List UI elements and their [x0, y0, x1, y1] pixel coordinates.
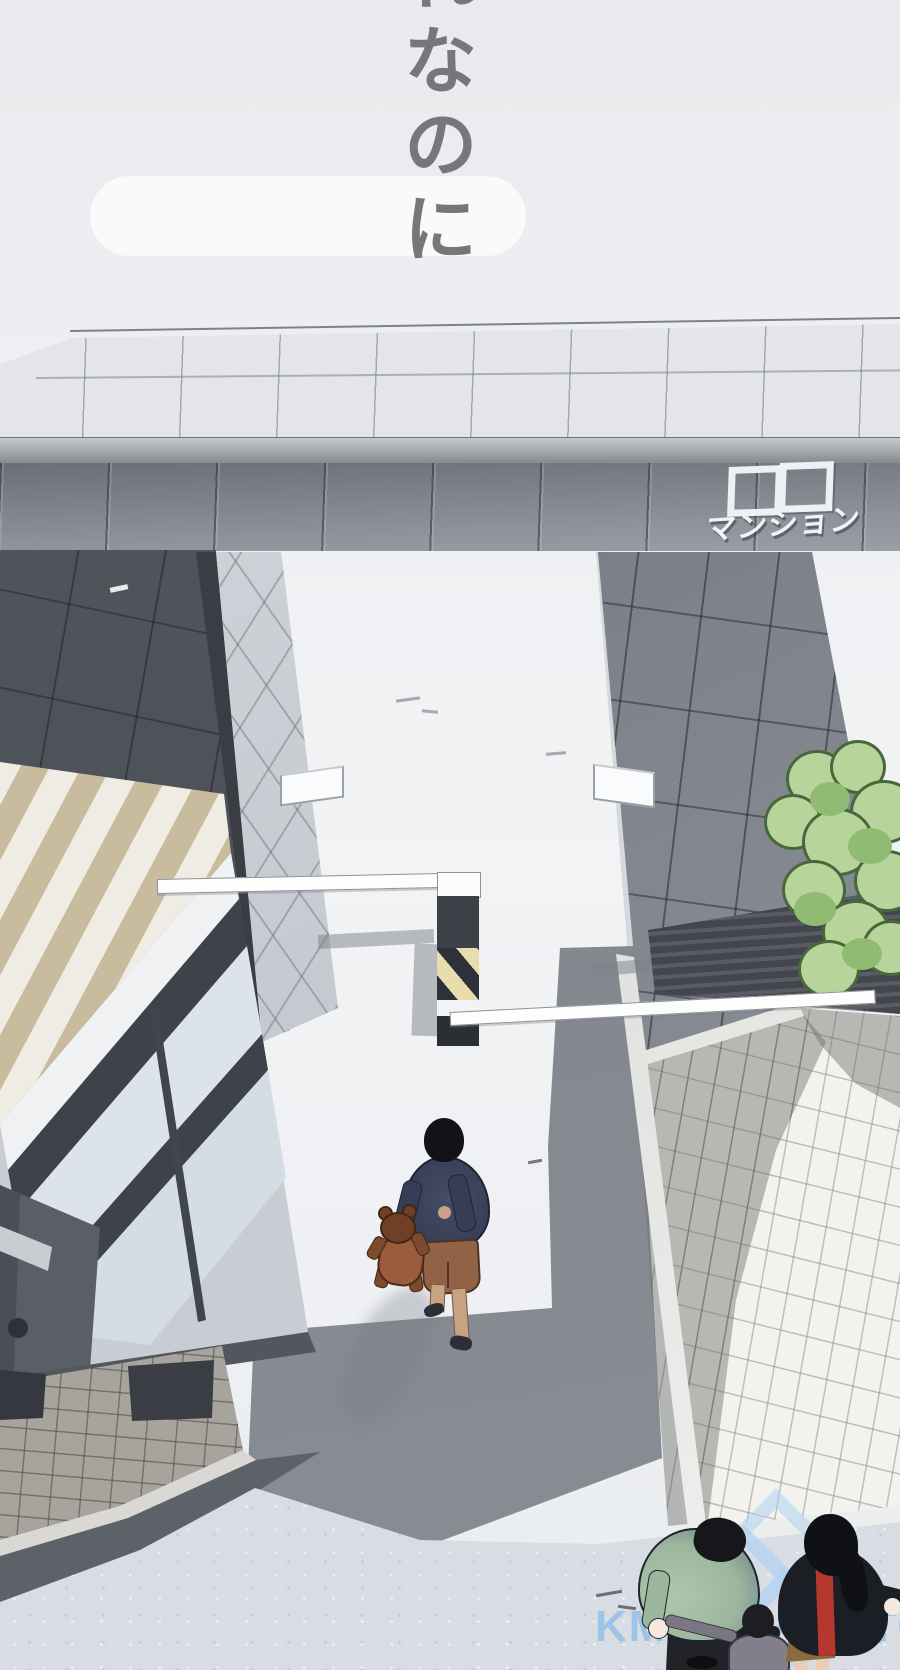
woman-red-scarf	[815, 1564, 835, 1657]
barrier-post-body	[437, 896, 479, 948]
child-head	[742, 1604, 774, 1638]
manga-panel: れなのに マンション	[0, 0, 900, 1670]
child-body	[728, 1634, 790, 1670]
dialogue-text: れなのに	[381, 0, 488, 274]
ground-scratch	[528, 1159, 542, 1164]
ground-scratch	[546, 751, 566, 755]
booth-door-knob	[8, 1318, 28, 1338]
man-shoe	[686, 1656, 718, 1669]
gate-beam-top-band	[0, 437, 900, 464]
ground-scratch	[396, 696, 420, 702]
barrier-post-hazard-stripes	[437, 948, 479, 1000]
bush	[758, 742, 900, 1014]
ground-scratch	[422, 709, 438, 713]
boy-hand	[438, 1206, 451, 1219]
woman-hand	[884, 1598, 900, 1615]
boy-shorts-seam	[447, 1262, 449, 1288]
boy-hair	[424, 1118, 464, 1162]
barrier-post-cap	[437, 872, 481, 898]
boy-leg	[451, 1288, 470, 1343]
wheel-stopper	[593, 764, 655, 809]
